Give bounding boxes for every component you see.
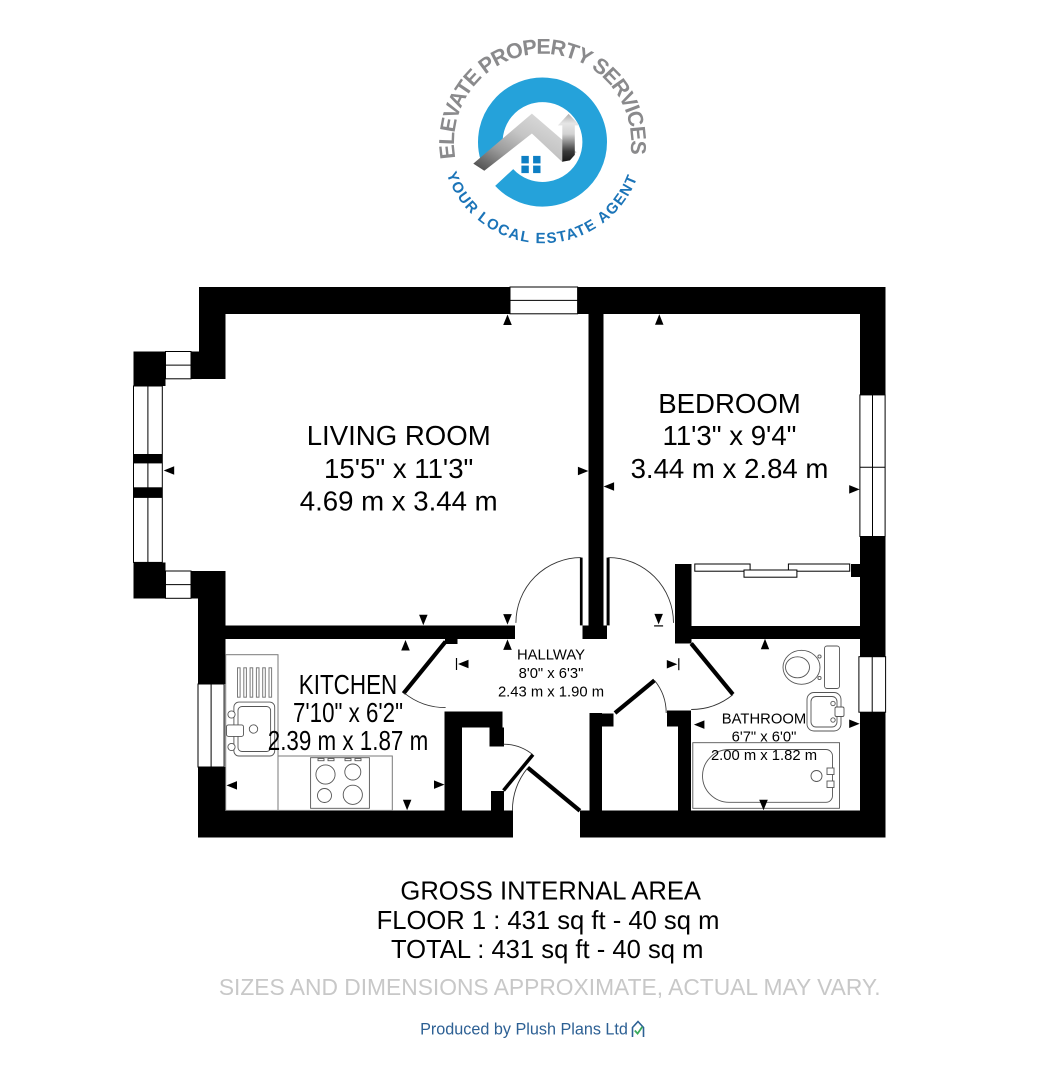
- svg-text:Produced by Plush Plans Ltd: Produced by Plush Plans Ltd: [420, 1021, 628, 1039]
- svg-text:TOTAL : 431 sq ft - 40 sq m: TOTAL : 431 sq ft - 40 sq m: [391, 936, 703, 964]
- svg-text:FLOOR 1 : 431 sq ft - 40 sq m: FLOOR 1 : 431 sq ft - 40 sq m: [377, 907, 720, 935]
- svg-text:LIVING ROOM15'5" x 11'3"4.69 m: LIVING ROOM15'5" x 11'3"4.69 m x 3.44 m: [300, 420, 498, 517]
- svg-text:GROSS INTERNAL AREA: GROSS INTERNAL AREA: [400, 877, 701, 905]
- svg-text:SIZES AND DIMENSIONS APPROXIMA: SIZES AND DIMENSIONS APPROXIMATE, ACTUAL…: [219, 974, 881, 1000]
